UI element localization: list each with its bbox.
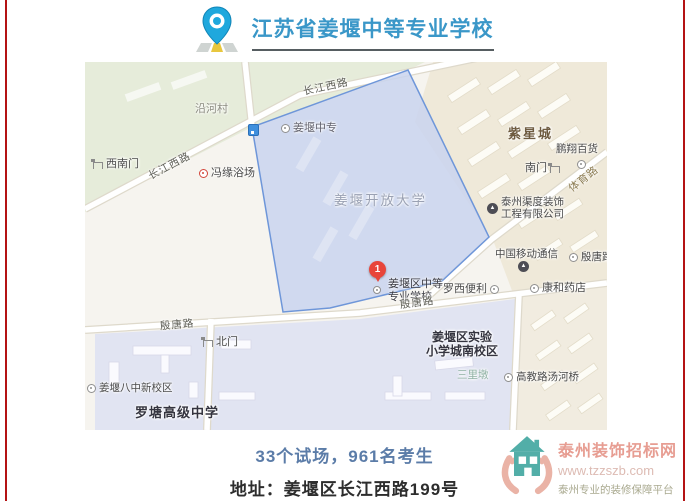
watermark: 泰州装饰招标网 www.tzzszb.com 泰州专业的装修保障平台	[501, 431, 681, 497]
china-mobile-icon: ▲	[518, 261, 529, 272]
poi-pengxiang-store: 鹏翔百货	[556, 144, 598, 156]
mall-poi-icon	[577, 160, 586, 169]
hands-holding-house-icon	[501, 431, 553, 495]
poi-north-gate: 北门	[203, 336, 238, 348]
poi-china-mobile: 中国移动通信	[495, 249, 558, 261]
poi-luoxi-store: 罗西便利	[443, 283, 499, 295]
gate-icon	[203, 340, 213, 347]
title-block: 江苏省姜堰中等专业学校	[252, 6, 494, 51]
bus-stop-icon	[248, 124, 259, 136]
poi-bazhong-campus: 姜堰八中新校区	[87, 383, 173, 395]
watermark-site-name: 泰州装饰招标网	[558, 437, 677, 461]
marker-school-poi-icon	[373, 286, 381, 294]
map-canvas[interactable]: 沿河村 长江西路 长江西路 西南门 冯缘浴场 姜堰中专 姜堰开放大学 1 姜堰区…	[85, 62, 607, 430]
area-shiyan-school: 姜堰区实验 小学城南校区	[426, 331, 498, 359]
gate-icon	[93, 162, 103, 169]
gate-icon	[550, 166, 560, 173]
title-underline	[252, 49, 494, 51]
poi-jiangyan-zhongzhuan: 姜堰中专	[281, 122, 337, 134]
page: 江苏省姜堰中等专业学校	[0, 0, 689, 501]
area-luotang-school: 罗塘高级中学	[135, 406, 219, 420]
poi-yintang-stop: 殷唐路	[569, 252, 607, 264]
watermark-text: 泰州装饰招标网 www.tzzszb.com 泰州专业的装修保障平台	[558, 431, 677, 497]
stop-poi-icon	[569, 253, 578, 262]
watermark-url: www.tzzszb.com	[558, 463, 677, 478]
page-title: 江苏省姜堰中等专业学校	[252, 13, 494, 43]
store-poi-icon	[490, 285, 499, 294]
area-zixingcheng: 紫星城	[508, 127, 553, 141]
bath-poi-icon	[199, 169, 208, 178]
map-pin-icon	[196, 6, 238, 52]
right-red-border	[683, 0, 685, 501]
left-red-border	[5, 0, 7, 501]
poi-gaojiao-bridge: 高教路汤河桥	[504, 372, 579, 384]
watermark-tagline: 泰州专业的装修保障平台	[558, 482, 677, 497]
area-open-university: 姜堰开放大学	[334, 194, 427, 209]
school-poi-icon	[87, 384, 96, 393]
poi-south-gate: 南门	[525, 162, 560, 174]
poi-kanghe-pharmacy: 康和药店	[530, 282, 586, 294]
poi-yanhe-village: 沿河村	[195, 103, 228, 115]
poi-southwest-gate: 西南门	[93, 158, 139, 170]
school-poi-icon	[281, 124, 290, 133]
poi-taizhou-decor-company: ▲ 泰州渠度装饰 工程有限公司	[487, 196, 564, 220]
poi-sanlidun: 三里墩	[457, 370, 489, 382]
pharmacy-poi-icon	[530, 284, 539, 293]
poi-fengyuan-bath: 冯缘浴场	[199, 167, 255, 179]
bridge-poi-icon	[504, 373, 513, 382]
header: 江苏省姜堰中等专业学校	[0, 6, 689, 52]
company-poi-icon: ▲	[487, 203, 498, 214]
marker-pin-1[interactable]: 1	[369, 261, 386, 278]
